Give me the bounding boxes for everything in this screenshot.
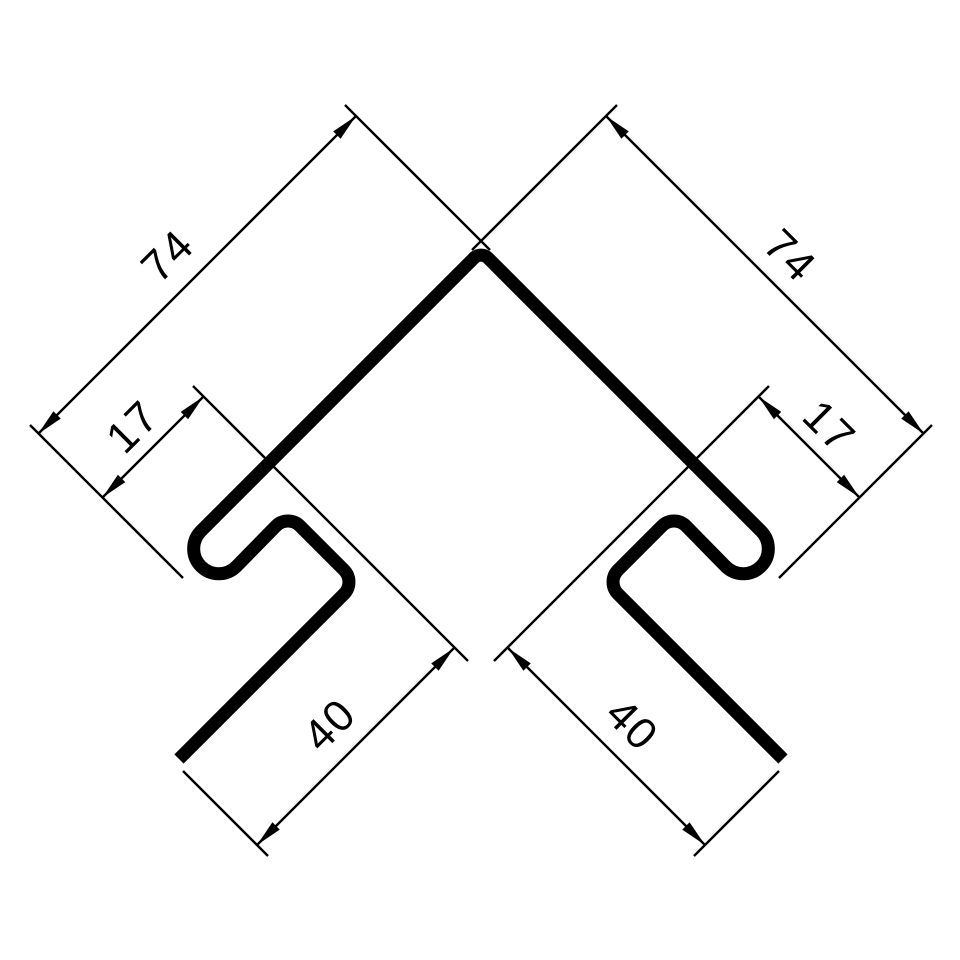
sheet-background <box>0 0 960 960</box>
drawing-page: 74 74 17 17 40 40 <box>0 0 960 960</box>
technical-drawing-canvas: 74 74 17 17 40 40 <box>0 0 960 960</box>
